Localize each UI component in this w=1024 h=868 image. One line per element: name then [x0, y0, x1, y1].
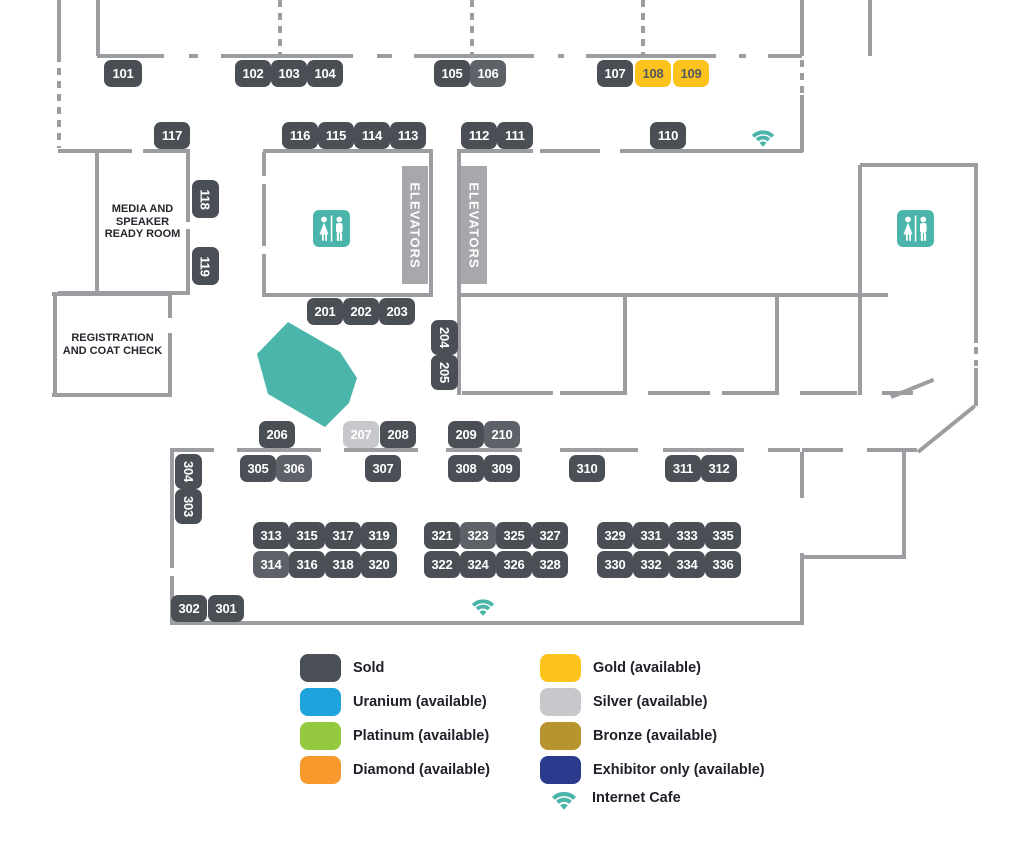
- wall-segment: [860, 163, 978, 167]
- legend-swatch-bronze-available: [540, 722, 581, 750]
- booth-331[interactable]: 331: [633, 522, 669, 549]
- booth-number: 308: [455, 461, 476, 476]
- booth-119[interactable]: 119: [192, 247, 219, 285]
- booth-number: 110: [658, 128, 678, 143]
- booth-325[interactable]: 325: [496, 522, 532, 549]
- elevator-bar-1: ELEVATORS: [402, 166, 428, 284]
- booth-204[interactable]: 204: [431, 320, 458, 355]
- booth-207[interactable]: 207: [343, 421, 379, 448]
- booth-number: 321: [431, 528, 452, 543]
- booth-number: 206: [266, 427, 287, 442]
- wall-segment: [429, 152, 433, 297]
- booth-303[interactable]: 303: [175, 489, 202, 524]
- booth-number: 332: [640, 557, 661, 572]
- booth-number: 106: [477, 66, 498, 81]
- booth-number: 303: [181, 496, 196, 517]
- elevator-label: ELEVATORS: [408, 182, 423, 268]
- wall-segment: [974, 165, 978, 343]
- wall-segment: [800, 95, 804, 152]
- wall-segment: [377, 54, 392, 58]
- booth-336[interactable]: 336: [705, 551, 741, 578]
- highlight-area: [255, 318, 359, 430]
- wall-segment: [97, 54, 164, 58]
- booth-number: 301: [215, 601, 236, 616]
- booth-335[interactable]: 335: [705, 522, 741, 549]
- wall-segment: [800, 452, 804, 498]
- booth-number: 316: [296, 557, 317, 572]
- wall-segment: [558, 54, 564, 58]
- wall-segment: [262, 152, 266, 176]
- booth-105[interactable]: 105: [434, 60, 470, 87]
- internet-cafe-wifi-icon-legend: [548, 785, 580, 811]
- booth-number: 312: [708, 461, 729, 476]
- legend-label: Exhibitor only (available): [593, 762, 765, 778]
- wall-segment: [237, 448, 321, 452]
- booth-315[interactable]: 315: [289, 522, 325, 549]
- wall-segment: [414, 54, 534, 58]
- wall-segment: [170, 448, 174, 568]
- booth-117[interactable]: 117: [154, 122, 190, 149]
- wall-segment: [446, 448, 522, 452]
- legend-item-silver-available: Silver (available): [540, 688, 707, 716]
- wall-segment: [170, 621, 804, 625]
- booth-number: 327: [539, 528, 560, 543]
- booth-number: 329: [604, 528, 625, 543]
- booth-number: 320: [368, 557, 389, 572]
- legend-item-internet-cafe: Internet Cafe: [544, 785, 681, 811]
- booth-312[interactable]: 312: [701, 455, 737, 482]
- booth-314[interactable]: 314: [253, 551, 289, 578]
- booth-110[interactable]: 110: [650, 122, 686, 149]
- wall-segment-dashed: [470, 0, 474, 56]
- wall-segment: [663, 448, 744, 452]
- wall-segment-dashed: [57, 68, 61, 148]
- booth-number: 328: [539, 557, 560, 572]
- booth-number: 203: [386, 304, 407, 319]
- wall-segment-diagonal: [890, 378, 934, 399]
- booth-number: 334: [676, 557, 697, 572]
- booth-301[interactable]: 301: [208, 595, 244, 622]
- booth-334[interactable]: 334: [669, 551, 705, 578]
- legend-swatch-silver-available: [540, 688, 581, 716]
- legend-item-gold-available: Gold (available): [540, 654, 701, 682]
- booth-number: 204: [437, 327, 452, 348]
- legend-label: Bronze (available): [593, 728, 717, 744]
- booth-number: 331: [640, 528, 661, 543]
- booth-number: 119: [198, 256, 213, 276]
- room-label-media-speaker-ready-room: MEDIA ANDSPEAKERREADY ROOM: [97, 152, 188, 292]
- booth-208[interactable]: 208: [380, 421, 416, 448]
- booth-201[interactable]: 201: [307, 298, 343, 325]
- booth-101[interactable]: 101: [104, 60, 142, 87]
- booth-number: 324: [467, 557, 488, 572]
- booth-107[interactable]: 107: [597, 60, 633, 87]
- booth-118[interactable]: 118: [192, 180, 219, 218]
- wall-segment-diagonal: [917, 405, 976, 454]
- booth-113[interactable]: 113: [390, 122, 426, 149]
- wall-segment: [96, 0, 100, 56]
- legend-label: Internet Cafe: [592, 790, 681, 806]
- booth-number: 104: [314, 66, 335, 81]
- legend-label: Platinum (available): [353, 728, 489, 744]
- booth-number: 111: [505, 128, 525, 143]
- booth-104[interactable]: 104: [307, 60, 343, 87]
- wall-segment-dashed: [800, 60, 804, 93]
- booth-number: 118: [198, 189, 213, 209]
- booth-116[interactable]: 116: [282, 122, 318, 149]
- booth-308[interactable]: 308: [448, 455, 484, 482]
- booth-332[interactable]: 332: [633, 551, 669, 578]
- booth-102[interactable]: 102: [235, 60, 271, 87]
- legend-swatch-uranium-available: [300, 688, 341, 716]
- legend-swatch-platinum-available: [300, 722, 341, 750]
- booth-112[interactable]: 112: [461, 122, 497, 149]
- wall-segment: [974, 368, 978, 406]
- booth-number: 208: [387, 427, 408, 442]
- wall-segment: [462, 391, 553, 395]
- wall-segment: [802, 448, 843, 452]
- wall-segment-dashed: [641, 0, 645, 56]
- booth-number: 309: [491, 461, 512, 476]
- booth-number: 105: [441, 66, 462, 81]
- legend-label: Sold: [353, 660, 384, 676]
- booth-number: 313: [260, 528, 281, 543]
- booth-number: 330: [604, 557, 625, 572]
- booth-number: 304: [181, 461, 196, 482]
- booth-317[interactable]: 317: [325, 522, 361, 549]
- wall-segment: [739, 54, 746, 58]
- wall-segment: [620, 149, 803, 153]
- booth-304[interactable]: 304: [175, 454, 202, 489]
- booth-320[interactable]: 320: [361, 551, 397, 578]
- wall-segment: [800, 0, 804, 56]
- booth-326[interactable]: 326: [496, 551, 532, 578]
- booth-number: 112: [469, 128, 489, 143]
- legend-item-uranium-available: Uranium (available): [300, 688, 487, 716]
- floor-plan: MEDIA ANDSPEAKERREADY ROOMREGISTRATIONAN…: [0, 0, 1024, 868]
- legend-item-diamond-available: Diamond (available): [300, 756, 490, 784]
- legend-item-bronze-available: Bronze (available): [540, 722, 717, 750]
- booth-114[interactable]: 114: [354, 122, 390, 149]
- booth-330[interactable]: 330: [597, 551, 633, 578]
- wall-segment: [768, 448, 800, 452]
- booth-205[interactable]: 205: [431, 355, 458, 390]
- wall-segment: [263, 149, 433, 153]
- booth-number: 318: [332, 557, 353, 572]
- wall-segment: [586, 54, 716, 58]
- wall-segment: [57, 0, 61, 62]
- wall-segment: [800, 391, 857, 395]
- booth-number: 333: [676, 528, 697, 543]
- booth-number: 306: [283, 461, 304, 476]
- booth-number: 302: [178, 601, 199, 616]
- booth-number: 311: [673, 461, 693, 476]
- booth-number: 201: [314, 304, 335, 319]
- booth-number: 310: [576, 461, 597, 476]
- legend-label: Uranium (available): [353, 694, 487, 710]
- booth-206[interactable]: 206: [259, 421, 295, 448]
- wall-segment: [802, 555, 904, 559]
- booth-106[interactable]: 106: [470, 60, 506, 87]
- booth-number: 115: [326, 128, 346, 143]
- wall-segment: [722, 391, 777, 395]
- booth-329[interactable]: 329: [597, 522, 633, 549]
- booth-number: 319: [368, 528, 389, 543]
- booth-number: 102: [242, 66, 263, 81]
- wall-segment: [457, 293, 888, 297]
- wall-segment-dashed: [974, 347, 978, 366]
- legend-swatch-sold: [300, 654, 341, 682]
- booth-number: 336: [712, 557, 733, 572]
- booth-318[interactable]: 318: [325, 551, 361, 578]
- elevator-bar-2: ELEVATORS: [461, 166, 487, 284]
- booth-321[interactable]: 321: [424, 522, 460, 549]
- legend-label: Silver (available): [593, 694, 707, 710]
- booth-328[interactable]: 328: [532, 551, 568, 578]
- booth-210[interactable]: 210: [484, 421, 520, 448]
- legend-swatch-diamond-available: [300, 756, 341, 784]
- legend-item-sold: Sold: [300, 654, 384, 682]
- wall-segment: [623, 297, 627, 395]
- booth-307[interactable]: 307: [365, 455, 401, 482]
- booth-number: 209: [455, 427, 476, 442]
- wall-segment: [560, 391, 625, 395]
- booth-number: 317: [332, 528, 353, 543]
- booth-number: 326: [503, 557, 524, 572]
- booth-number: 314: [260, 557, 281, 572]
- booth-323[interactable]: 323: [460, 522, 496, 549]
- restroom-icon-2: [897, 210, 934, 247]
- booth-number: 325: [503, 528, 524, 543]
- booth-number: 315: [296, 528, 317, 543]
- booth-322[interactable]: 322: [424, 551, 460, 578]
- booth-306[interactable]: 306: [276, 455, 312, 482]
- wall-segment: [775, 297, 779, 395]
- wall-segment: [560, 448, 638, 452]
- wall-segment: [189, 54, 198, 58]
- wall-segment: [902, 452, 906, 559]
- booth-111[interactable]: 111: [497, 122, 533, 149]
- elevator-label: ELEVATORS: [467, 182, 482, 268]
- internet-cafe-wifi-icon-2: [468, 593, 498, 617]
- restroom-icon-1: [313, 210, 350, 247]
- booth-333[interactable]: 333: [669, 522, 705, 549]
- booth-327[interactable]: 327: [532, 522, 568, 549]
- legend-swatch-gold-available: [540, 654, 581, 682]
- booth-319[interactable]: 319: [361, 522, 397, 549]
- booth-310[interactable]: 310: [569, 455, 605, 482]
- booth-number: 108: [642, 66, 663, 81]
- legend-swatch-exhibitor-only-available: [540, 756, 581, 784]
- booth-324[interactable]: 324: [460, 551, 496, 578]
- booth-109[interactable]: 109: [673, 60, 709, 87]
- booth-number: 207: [350, 427, 371, 442]
- booth-311[interactable]: 311: [665, 455, 701, 482]
- booth-number: 210: [491, 427, 512, 442]
- booth-number: 322: [431, 557, 452, 572]
- booth-number: 335: [712, 528, 733, 543]
- legend-label: Gold (available): [593, 660, 701, 676]
- wall-segment: [221, 54, 353, 58]
- internet-cafe-wifi-icon-1: [748, 124, 778, 148]
- wall-segment: [344, 448, 418, 452]
- booth-302[interactable]: 302: [171, 595, 207, 622]
- booth-number: 307: [372, 461, 393, 476]
- wall-segment: [262, 293, 432, 297]
- wall-segment: [262, 254, 266, 297]
- wall-segment: [800, 553, 804, 625]
- booth-202[interactable]: 202: [343, 298, 379, 325]
- booth-number: 101: [112, 66, 133, 81]
- legend-item-platinum-available: Platinum (available): [300, 722, 489, 750]
- wall-segment: [867, 448, 917, 452]
- booth-103[interactable]: 103: [271, 60, 307, 87]
- booth-209[interactable]: 209: [448, 421, 484, 448]
- legend-item-exhibitor-only-available: Exhibitor only (available): [540, 756, 765, 784]
- booth-115[interactable]: 115: [318, 122, 354, 149]
- booth-316[interactable]: 316: [289, 551, 325, 578]
- booth-number: 113: [398, 128, 418, 143]
- booth-number: 117: [162, 128, 182, 143]
- booth-number: 107: [604, 66, 625, 81]
- booth-305[interactable]: 305: [240, 455, 276, 482]
- wall-segment: [540, 149, 600, 153]
- room-label-registration-coat-check: REGISTRATIONAND COAT CHECK: [55, 296, 170, 394]
- booth-313[interactable]: 313: [253, 522, 289, 549]
- wall-segment: [868, 0, 872, 56]
- booth-number: 323: [467, 528, 488, 543]
- booth-number: 103: [278, 66, 299, 81]
- booth-number: 114: [362, 128, 382, 143]
- booth-number: 202: [350, 304, 371, 319]
- booth-number: 109: [680, 66, 701, 81]
- wall-segment: [858, 165, 862, 395]
- wall-segment-dashed: [278, 0, 282, 56]
- booth-number: 305: [247, 461, 268, 476]
- wall-segment: [768, 54, 802, 58]
- wall-segment: [648, 391, 710, 395]
- booth-number: 205: [437, 362, 452, 383]
- wall-segment: [457, 149, 533, 153]
- booth-309[interactable]: 309: [484, 455, 520, 482]
- booth-203[interactable]: 203: [379, 298, 415, 325]
- booth-108[interactable]: 108: [635, 60, 671, 87]
- booth-number: 116: [290, 128, 310, 143]
- wall-segment: [170, 448, 214, 452]
- wall-segment: [262, 184, 266, 246]
- legend-label: Diamond (available): [353, 762, 490, 778]
